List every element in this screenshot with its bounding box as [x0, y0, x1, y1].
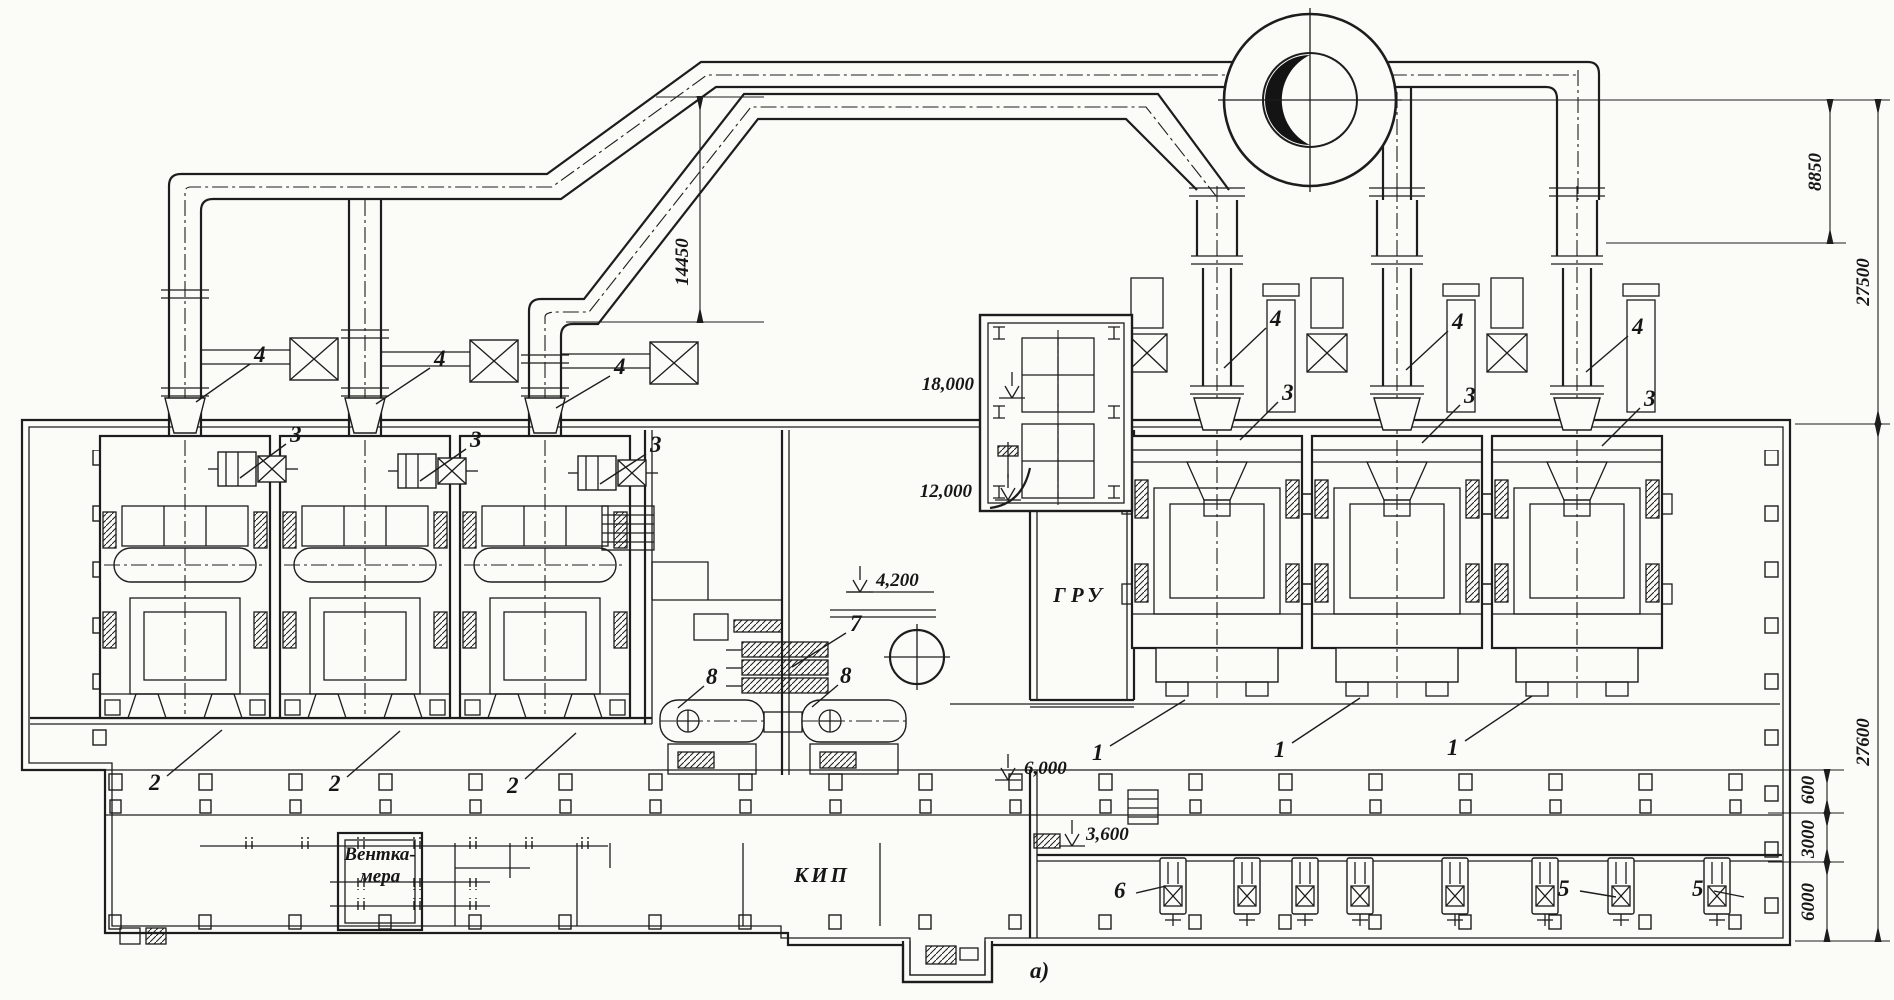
svg-text:1: 1 — [1092, 740, 1104, 765]
svg-text:4: 4 — [253, 342, 266, 367]
svg-text:4: 4 — [1631, 314, 1644, 339]
svg-text:4: 4 — [433, 346, 446, 371]
room-label-kip: КИП — [793, 863, 850, 887]
fan-left-2 — [388, 454, 478, 488]
dimension-3000: 3000 — [1798, 820, 1819, 860]
boiler-house-plan-sheet: ГРУ КИП Вентка- мера — [0, 0, 1894, 1000]
svg-text:8: 8 — [840, 663, 852, 688]
dimension-600: 600 — [1798, 775, 1819, 804]
svg-text:4: 4 — [1269, 306, 1282, 331]
svg-text:3: 3 — [649, 432, 662, 457]
svg-text:4: 4 — [613, 354, 626, 379]
svg-text:3: 3 — [289, 422, 302, 447]
walkway-column-row — [105, 772, 1765, 817]
dimension-27500: 27500 — [1853, 258, 1874, 307]
svg-text:1: 1 — [1447, 735, 1459, 760]
svg-text:6,000: 6,000 — [1024, 758, 1067, 779]
svg-text:2: 2 — [506, 773, 519, 798]
svg-text:5: 5 — [1692, 876, 1704, 901]
dimension-8850: 8850 — [1805, 153, 1826, 192]
svg-text:3: 3 — [1463, 383, 1476, 408]
svg-text:3: 3 — [1643, 386, 1656, 411]
room-label-gru: ГРУ — [1052, 583, 1107, 607]
svg-text:4: 4 — [1451, 309, 1464, 334]
svg-text:6: 6 — [1114, 878, 1126, 903]
svg-text:14450: 14450 — [672, 238, 693, 286]
flue-shaft — [980, 315, 1132, 511]
svg-text:1: 1 — [1274, 737, 1286, 762]
fan-left-3 — [568, 456, 658, 490]
elevation-12000: 12,000 — [920, 481, 973, 502]
svg-text:3,600: 3,600 — [1085, 824, 1129, 845]
svg-text:2: 2 — [328, 771, 341, 796]
dimension-6000: 6000 — [1798, 883, 1819, 922]
svg-text:8: 8 — [706, 664, 718, 689]
elevation-18000: 18,000 — [922, 374, 975, 395]
figure-label: а) — [1030, 958, 1049, 983]
svg-text:4,200: 4,200 — [875, 570, 919, 591]
svg-text:3: 3 — [469, 427, 482, 452]
right-wall-columns — [1764, 450, 1779, 920]
svg-text:3: 3 — [1281, 380, 1294, 405]
svg-text:2: 2 — [148, 770, 161, 795]
svg-text:7: 7 — [850, 611, 863, 636]
dimension-27600: 27600 — [1853, 718, 1874, 767]
svg-text:5: 5 — [1558, 876, 1570, 901]
plan-drawing: ГРУ КИП Вентка- мера — [0, 0, 1894, 1000]
